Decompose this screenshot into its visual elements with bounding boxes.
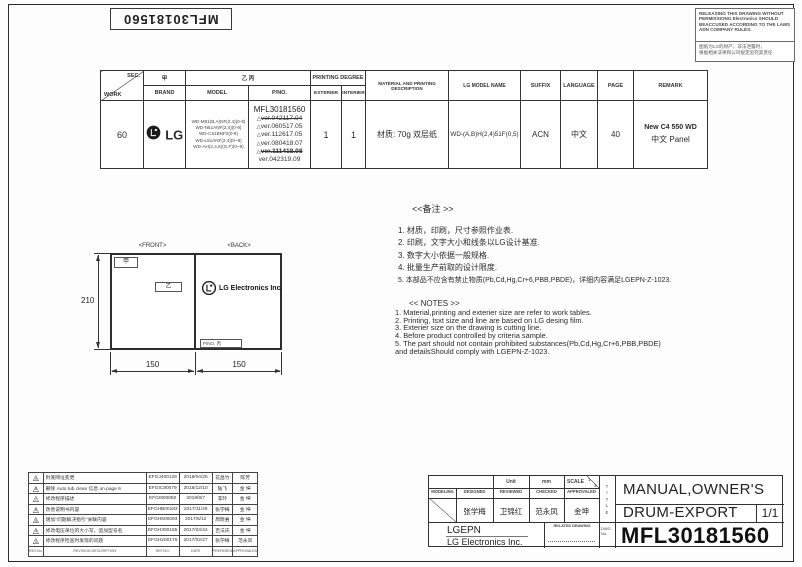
header-interier: INTERIER [342, 86, 366, 101]
confidentiality-warning-box: RELEASING THIS DRAWING WITHOUT PERMISSIO… [695, 8, 795, 62]
revision-row: △9 封底网址变更 EFGJ400129 2019/04/25 花昌竹 陈芳 [29, 473, 258, 484]
back-panel-company-text: LG Electronics Inc. [219, 285, 282, 292]
cell-material: 材质: 70g 双层纸 [366, 101, 449, 169]
modeling-blank-slash [429, 498, 456, 522]
dwg-no-label: DWG.No. [601, 526, 612, 536]
checked-label: CHECKED [529, 489, 564, 494]
revision-row: △8 删除 Auto tub clean 信息 on page 9 EFGIC8… [29, 483, 258, 494]
header-brand: BRAND [144, 86, 186, 101]
cell-exterier: 1 [311, 101, 342, 169]
related-drawing-placeholder [548, 532, 595, 542]
revision-triangle-icon: △8 [31, 484, 40, 493]
dim-arrow-left-icon [111, 369, 117, 373]
cell-interier: 1 [342, 101, 366, 169]
revision-row: △4 修改电压单位的大小写，追加型号名 EFGH300155 2017/04/2… [29, 525, 258, 536]
back-panel-lg-logo-icon [202, 281, 216, 295]
work-spec-table: SEC. WORK 甲 乙 丙 PRINTING DEGREE MATERIAL… [100, 70, 708, 169]
note-cn-5: 5. 本部品不应含有禁止物质(Pb,Cd,Hg,Cr+6,PBB,PBDE)，详… [398, 275, 733, 287]
dim-150-back-value: 150 [196, 360, 282, 369]
revision-triangle-icon: △6 [31, 505, 40, 514]
back-panel-label: <BACK> [196, 243, 282, 249]
revision-row: △3 修改程序检查时发现的问题 EFGH200176 2017/02/27 张学… [29, 536, 258, 547]
revision-table-footer: REV.No. REVISION DESCRIPTION REF.NO. DAT… [29, 546, 258, 557]
cell-pno: MFL30181560 △ver.042117.04 △ver.060517.0… [249, 101, 311, 169]
pno-main: MFL30181560 [249, 105, 310, 115]
reviewed-name: 卫锦红 [493, 506, 529, 517]
scale-denominator: 1 [594, 483, 597, 488]
marker-jia-box: 甲 [114, 257, 138, 268]
revision-triangle-icon: △7 [31, 494, 40, 503]
drawing-number: MFL30181560 [621, 523, 784, 548]
modeling-label: MODELING [429, 489, 456, 494]
related-drawing-label: RELATED DRAWING [545, 524, 599, 528]
note-en-5b: and detailsShould comply with LGEPN-Z-10… [395, 348, 740, 356]
cell-remark: New C4 550 WD 中文 Panel [634, 101, 708, 169]
note-cn-4: 4. 批量生产前取的设计限度. [398, 262, 733, 274]
header-language: LANGUAGE [561, 71, 598, 101]
notes-chinese: <<备注 >> 1. 材质，印刷，尺寸参照作业表. 2. 印刷，文字大小和线条以… [398, 202, 733, 287]
approvaled-label: APPROVALED [564, 489, 599, 494]
note-cn-3: 3. 数字大小依据一般规格. [398, 250, 733, 262]
cell-models: WD-M51(B,A)NF(2,4)(0-9) WD-N51ANF(2,4)(0… [186, 101, 249, 169]
cell-suffix: ACN [521, 101, 561, 169]
scale-numerator: 1 [588, 477, 591, 482]
header-material: MATERIAL AND PRINTING DESCRIPTION [366, 71, 449, 101]
panel-center-divider [194, 253, 196, 350]
designed-label: DESIGNED [456, 489, 493, 494]
company-full: LG Electronics Inc. [447, 537, 523, 547]
title-vertical-strip: TITLE [599, 476, 615, 522]
revision-row: △5 增加"问题解决指引"关联内容 EFGH600093 2017/6/12 周… [29, 515, 258, 526]
part-number-rotated: MFL30181560 [123, 12, 219, 27]
revision-triangle-icon: △4 [31, 526, 40, 535]
lg-logo-text: LG [165, 127, 183, 142]
drawing-sheet: MFL30181560 RELEASING THIS DRAWING WITHO… [0, 0, 802, 567]
revision-row: △7 修改程序描述 EFGI800050 2018/8/7 李玲 金 坤 [29, 494, 258, 505]
notes-cn-title: <<备注 >> [398, 202, 733, 215]
cell-brand: LG [144, 101, 186, 169]
header-suffix: SUFFIX [521, 71, 561, 101]
pno-marker-box: P/NO. 丙 [200, 339, 242, 348]
dim-arrow-down-icon [96, 342, 100, 348]
company-short: LGEPN [447, 525, 481, 536]
header-pno: P/NO. [249, 86, 311, 101]
revision-triangle-icon: △3 [31, 536, 40, 545]
lg-logo-icon [146, 125, 161, 145]
header-yi-bing: 乙 丙 [186, 71, 311, 86]
sheet-number: 1/1 [756, 504, 784, 522]
header-model: MODEL [186, 86, 249, 101]
part-number-fold-box: MFL30181560 [110, 8, 232, 30]
dim-150-back-line [197, 371, 280, 372]
unit-value: mm [529, 476, 564, 488]
warning-cn-line2: 根据相关法律和公司规定追究其责任 [699, 50, 791, 56]
cell-work-sec: 60 [101, 101, 144, 169]
sec-work-diagonal-header: SEC. WORK [101, 71, 144, 101]
dim-arrow-right-icon [188, 369, 194, 373]
header-printing-degree: PRINTING DEGREE [311, 71, 366, 86]
marker-yi-box: 乙 [155, 282, 182, 292]
cell-page: 40 [598, 101, 634, 169]
unit-label: Unit [493, 476, 529, 488]
checked-name: 范永凤 [529, 506, 564, 517]
notes-english: << NOTES >> 1. Material,printing and ext… [395, 299, 740, 355]
cell-lg-model-name: WD-(A,B)H(2,4)51F(0,5) [449, 101, 521, 169]
dim-arrow-up-icon [96, 255, 100, 261]
approvaled-name: 金坤 [564, 506, 599, 517]
revision-triangle-icon: △9 [31, 473, 40, 482]
warning-text-cn: 图纸为LG的财产，非法泄露时， 根据相关法律和公司规定追究其责任 [696, 42, 794, 61]
dim-arrow-left-icon [197, 369, 203, 373]
header-jia: 甲 [144, 71, 186, 86]
notes-en-title: << NOTES >> [395, 299, 740, 308]
dim-arrow-right-icon [275, 369, 281, 373]
designed-name: 张学梅 [456, 506, 493, 517]
dim-210-value: 210 [81, 296, 94, 305]
title-block: Unit mm SCALE 1 1 MODELING DESIGNED REVI… [428, 475, 783, 547]
front-panel-label: <FRONT> [110, 243, 195, 249]
drawing-title-line1: MANUAL,OWNER'S [623, 476, 783, 504]
header-page: PAGE [598, 71, 634, 101]
reviewed-label: REVIEWED [493, 489, 529, 494]
header-lg-model-name: LG MODEL NAME [449, 71, 521, 101]
dim-150-front-line [112, 371, 194, 372]
revision-row: △6 改善说明书内容 EFGHB00183 2017/11/29 张学梅 金 坤 [29, 504, 258, 515]
dim-150-front-value: 150 [110, 360, 195, 369]
header-exterier: EXTERIER [311, 86, 342, 101]
scale-label: SCALE [564, 476, 587, 488]
revision-triangle-icon: △5 [31, 515, 40, 524]
drawing-title-line2: DRUM-EXPORT [623, 504, 753, 522]
warning-text-en: RELEASING THIS DRAWING WITHOUT PERMISSIO… [696, 9, 794, 42]
note-cn-1: 1. 材质，印刷，尺寸参照作业表. [398, 225, 733, 237]
dim-210-line [98, 255, 99, 348]
dim-210-ext-top [94, 253, 110, 254]
revision-history-table: △9 封底网址变更 EFGJ400129 2019/04/25 花昌竹 陈芳 △… [28, 472, 258, 557]
header-remark: REMARK [634, 71, 708, 101]
cell-language: 中文 [561, 101, 598, 169]
dim-210-ext-bottom [94, 349, 110, 350]
note-cn-2: 2. 印刷，文字大小和线条以LG设计基准. [398, 237, 733, 249]
